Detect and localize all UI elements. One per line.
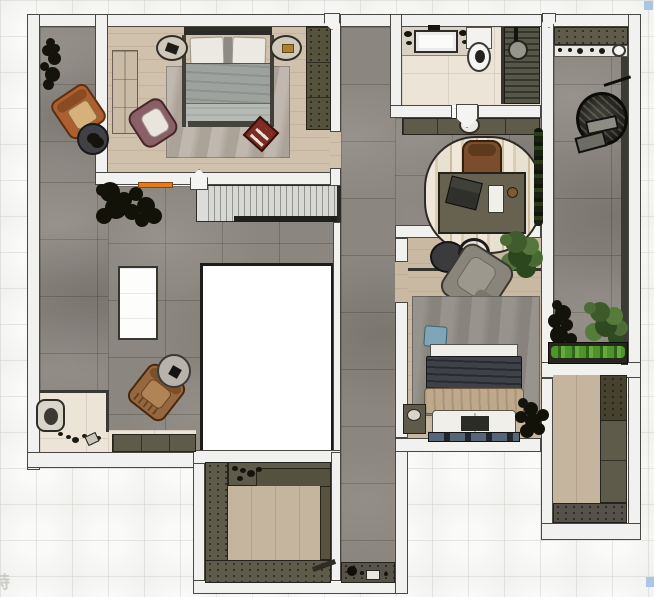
living-side-table: [157, 354, 191, 388]
closet-right-strip: [320, 486, 331, 560]
kitchen-island: [118, 266, 158, 340]
hanging-egg-chair: [576, 80, 630, 156]
wall-bathroom-left: [390, 14, 402, 118]
terrace-plant-icon: [46, 38, 55, 47]
counter-dots: [360, 571, 364, 575]
sill-bottles-icons: [558, 48, 562, 52]
bowl-icon: [507, 187, 518, 198]
staircase-bottom-edge: [234, 216, 338, 222]
floor-void: [200, 263, 333, 452]
vanity-sink: [414, 30, 458, 53]
bed2-bench: [428, 432, 520, 442]
kettle-icon: [347, 566, 357, 576]
balcony-green-plant-icon: [584, 302, 596, 314]
table-plant-icon: [87, 133, 100, 144]
nightstand-decor-icon: [165, 42, 179, 55]
closet-top-shelf-stack: [256, 468, 331, 488]
staircase-landing: [197, 186, 208, 221]
floor-plan-canvas[interactable]: 特: [0, 0, 654, 597]
wall-bedroom1-left: [95, 14, 108, 182]
toilet-seat-icon: [475, 50, 485, 63]
bedroom2-door-threshold: [395, 262, 408, 302]
staircase-right-edge: [337, 185, 341, 222]
headboard: [184, 27, 272, 35]
double-bed: [182, 27, 274, 127]
watermark-text: 特: [0, 568, 11, 593]
hallway-floor: [341, 27, 395, 585]
selection-handle-top-right: [644, 1, 653, 10]
closet-shelf-items: [232, 466, 238, 471]
wall-hall-right-bottom: [395, 438, 408, 594]
terrace-floor-lower: [40, 182, 108, 394]
storage-bottom-units: [553, 503, 627, 523]
wall-closet-left: [193, 452, 205, 592]
shoe-cabinet: [112, 434, 196, 452]
wall-bedroom1-right-jamb: [330, 168, 341, 186]
plum-armchair-cushion: [139, 106, 171, 140]
terrace-side-table: [77, 123, 109, 155]
doormat: [36, 399, 65, 432]
planter-box: [548, 342, 628, 364]
bedroom-tall-cabinet: [306, 26, 331, 130]
wall-bedroom2-left-a: [395, 238, 408, 262]
wall-bottom-left: [27, 452, 200, 468]
wall-bathroom-bottom-left: [390, 105, 452, 118]
dry-plant-icon: [518, 398, 528, 408]
orange-bench-mat: [138, 182, 173, 188]
entry-boundary-line: [40, 390, 109, 393]
bed2-duvet: [426, 356, 522, 390]
balcony-top-shelf: [554, 27, 628, 45]
wall-storage-bottom: [541, 523, 641, 540]
planter-greens: [551, 346, 625, 358]
storage-floor: [553, 375, 600, 503]
bedroom-door-threshold: [330, 132, 341, 168]
toilet-bowl: [467, 42, 491, 72]
nightstand2-decor-icon: [407, 409, 421, 421]
pillow-left: [190, 36, 225, 65]
closet-floor: [228, 486, 320, 560]
red-tray-stripes: [250, 124, 273, 147]
entry-boundary-line-v: [106, 392, 109, 432]
wall-storage-left: [541, 378, 553, 540]
closet-bottom-row: [205, 560, 331, 583]
balcony-dark-plant-icon: [552, 300, 562, 310]
selection-handle-bottom-right: [646, 577, 654, 587]
storage-shelf-items: [600, 375, 627, 421]
faucet-icon: [428, 25, 440, 30]
wall-living-hall: [333, 222, 341, 452]
notepad-icon: [488, 185, 504, 213]
bedroom2-plant-icon: [500, 234, 512, 246]
nightstand-left: [156, 35, 188, 61]
vanity-decor-left: [404, 31, 412, 37]
counter-box-icon: [366, 570, 380, 580]
nightstand-brass-icon: [282, 44, 294, 53]
desk-chair-back: [468, 144, 496, 156]
bed2-headrest-item: [461, 416, 489, 431]
shower-slatted-floor: [504, 27, 540, 104]
plant-hedge: [534, 128, 543, 226]
wall-bedroom1-right-top: [330, 14, 341, 132]
shoes-icons: [58, 432, 63, 436]
double-bed-2: [424, 342, 524, 442]
shower-pipe-icon: [514, 27, 518, 41]
nightstand-right: [270, 35, 302, 61]
living-tree-icon: [96, 184, 108, 196]
nightstand-2: [403, 404, 426, 434]
shower-drain-icon: [508, 40, 528, 60]
cup-icon: [168, 365, 182, 379]
wall-bathroom-bottom-right: [478, 105, 541, 118]
wall-bedroom1-bottom: [95, 172, 341, 185]
doormat-center-icon: [44, 408, 58, 425]
pillow-right: [232, 36, 267, 65]
sill-bowl-icon: [612, 44, 626, 57]
